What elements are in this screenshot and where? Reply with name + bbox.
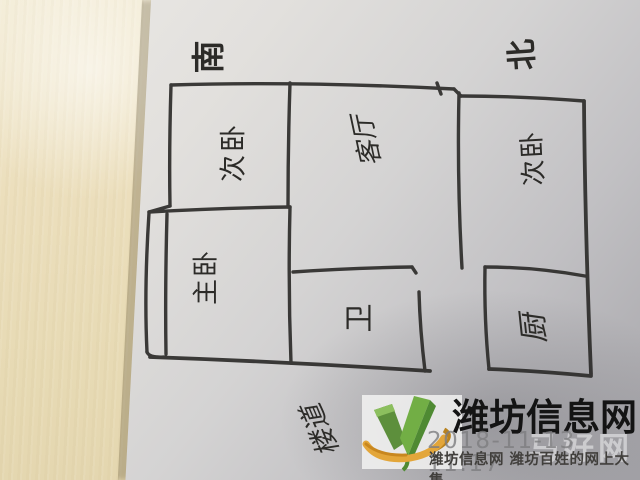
wall-divider-bedroom-living [288, 83, 290, 207]
wall-master-top [149, 207, 290, 212]
wall-kitchen-top [485, 267, 585, 276]
wall-bath-top [293, 267, 412, 272]
site-tagline: 潍坊信息网 潍坊百姓的网上大集 [429, 448, 640, 480]
wall-bath-door-tick [412, 267, 416, 273]
wall-top-left [171, 84, 454, 89]
wall-top-junction-tick [437, 83, 441, 94]
compass-north-label: 北 [495, 38, 542, 72]
photo-of-floor-plan: 南 北 次卧 客厅 次卧 主卧 卫 厨 楼道 马好网 潍坊信息网 2018-11… [0, 0, 640, 480]
room-label-bathroom: 卫 [336, 303, 378, 332]
wall-top-right [461, 96, 584, 101]
compass-south-label: 南 [182, 41, 230, 74]
wall-right [584, 101, 591, 374]
wall-left-upper [170, 85, 171, 206]
room-label-kitchen: 厨 [508, 312, 555, 346]
room-label-bedroom-second-left: 次卧 [212, 122, 251, 182]
wall-divider-master-bath [289, 207, 291, 363]
wall-master-left-outer [146, 213, 149, 352]
wall-bath-right [419, 292, 425, 371]
room-label-master-bedroom: 主卧 [186, 249, 223, 305]
wall-divider-living-bedroom [458, 93, 462, 268]
wall-master-left-inner [166, 214, 167, 354]
wall-kitchen-left [485, 267, 489, 369]
wall-kitchen-bottom [489, 369, 591, 376]
room-label-bedroom-second-right: 次卧 [511, 129, 551, 187]
